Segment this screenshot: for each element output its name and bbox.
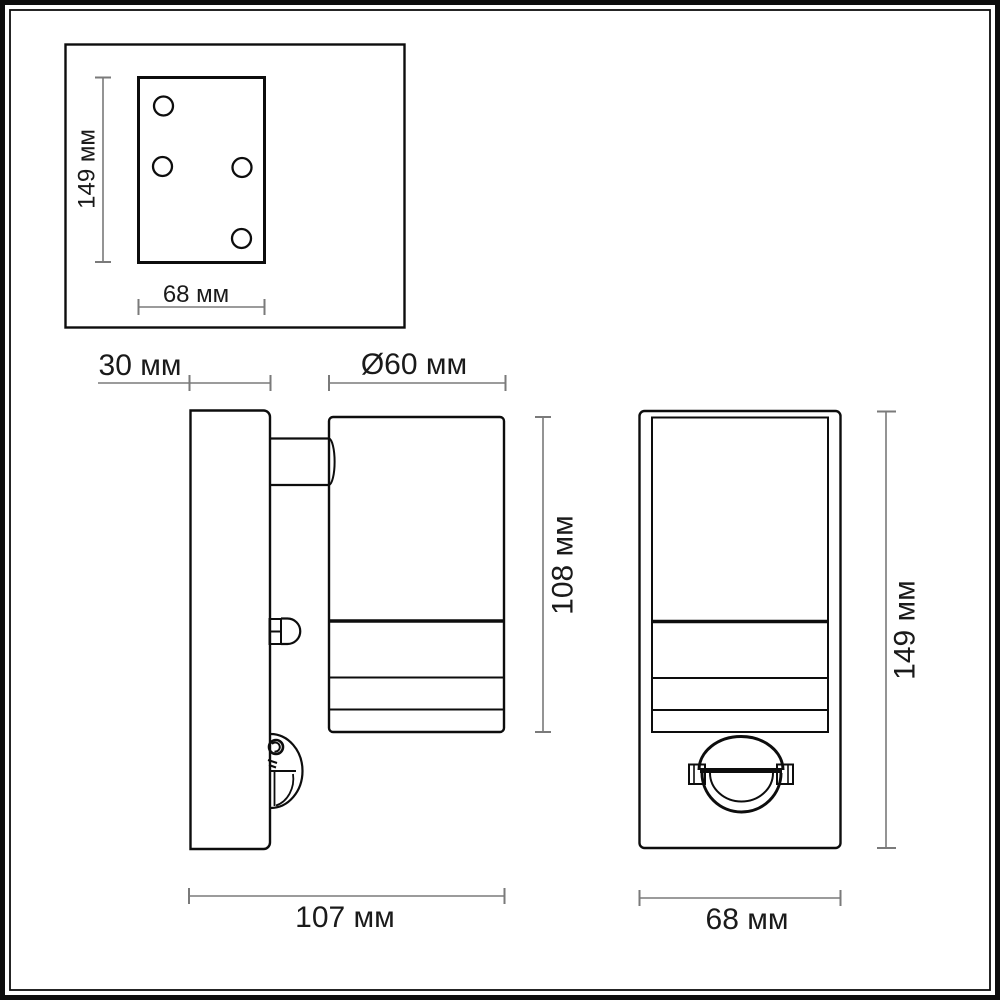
dim-label-plate-width: 68 мм xyxy=(163,281,229,308)
dim-label-total-depth: 107 мм xyxy=(295,901,395,934)
lamp-arm xyxy=(270,439,335,486)
dim-label-diameter: Ø60 мм xyxy=(361,348,467,381)
motion-sensor-front xyxy=(689,737,793,813)
front-width-dimension: 68 мм xyxy=(640,890,841,936)
front-view: 149 мм 68 мм xyxy=(640,411,922,936)
dim-label-plate-height: 149 мм xyxy=(74,129,101,209)
motion-sensor-side xyxy=(268,734,303,808)
front-glass-panel xyxy=(652,418,828,733)
plate-height-dimension: 149 мм xyxy=(74,78,112,263)
plate-width-dimension: 68 мм xyxy=(139,281,265,315)
dim-label-body-height: 108 мм xyxy=(547,515,580,615)
mounting-hole xyxy=(154,97,173,116)
sensor-dome xyxy=(699,737,783,771)
mounting-hole xyxy=(232,229,251,248)
mounting-hole xyxy=(233,158,252,177)
dim-label-front-height: 149 мм xyxy=(889,580,922,680)
mounting-plate xyxy=(139,78,265,263)
inner-frame-border xyxy=(10,10,990,990)
body-height-dimension: 108 мм xyxy=(535,417,580,732)
wall-plate-side xyxy=(191,411,271,850)
sensor-lens-inner xyxy=(710,773,773,802)
mounting-plate-detail-view: 149 мм 68 мм xyxy=(66,45,405,328)
side-view: 30 мм Ø60 мм xyxy=(98,348,580,934)
lamp-body-side xyxy=(329,417,504,732)
sensor-lens-outer xyxy=(702,773,781,812)
page-frame xyxy=(3,3,998,998)
dim-label-front-width: 68 мм xyxy=(706,903,789,936)
dim-label-plate-depth: 30 мм xyxy=(99,349,182,382)
detail-view-box xyxy=(66,45,405,328)
mounting-hole xyxy=(153,157,172,176)
adjustment-knob xyxy=(270,619,301,645)
front-height-dimension: 149 мм xyxy=(877,412,922,849)
drawing-page: 149 мм 68 мм 30 мм Ø60 мм xyxy=(0,0,1000,1000)
plate-depth-dimension: 30 мм xyxy=(98,349,271,391)
total-depth-dimension: 107 мм xyxy=(189,888,505,934)
outer-frame-border xyxy=(3,3,998,998)
diameter-dimension: Ø60 мм xyxy=(329,348,506,391)
technical-drawing: 149 мм 68 мм 30 мм Ø60 мм xyxy=(0,0,1000,1000)
front-body-outline xyxy=(640,411,841,848)
